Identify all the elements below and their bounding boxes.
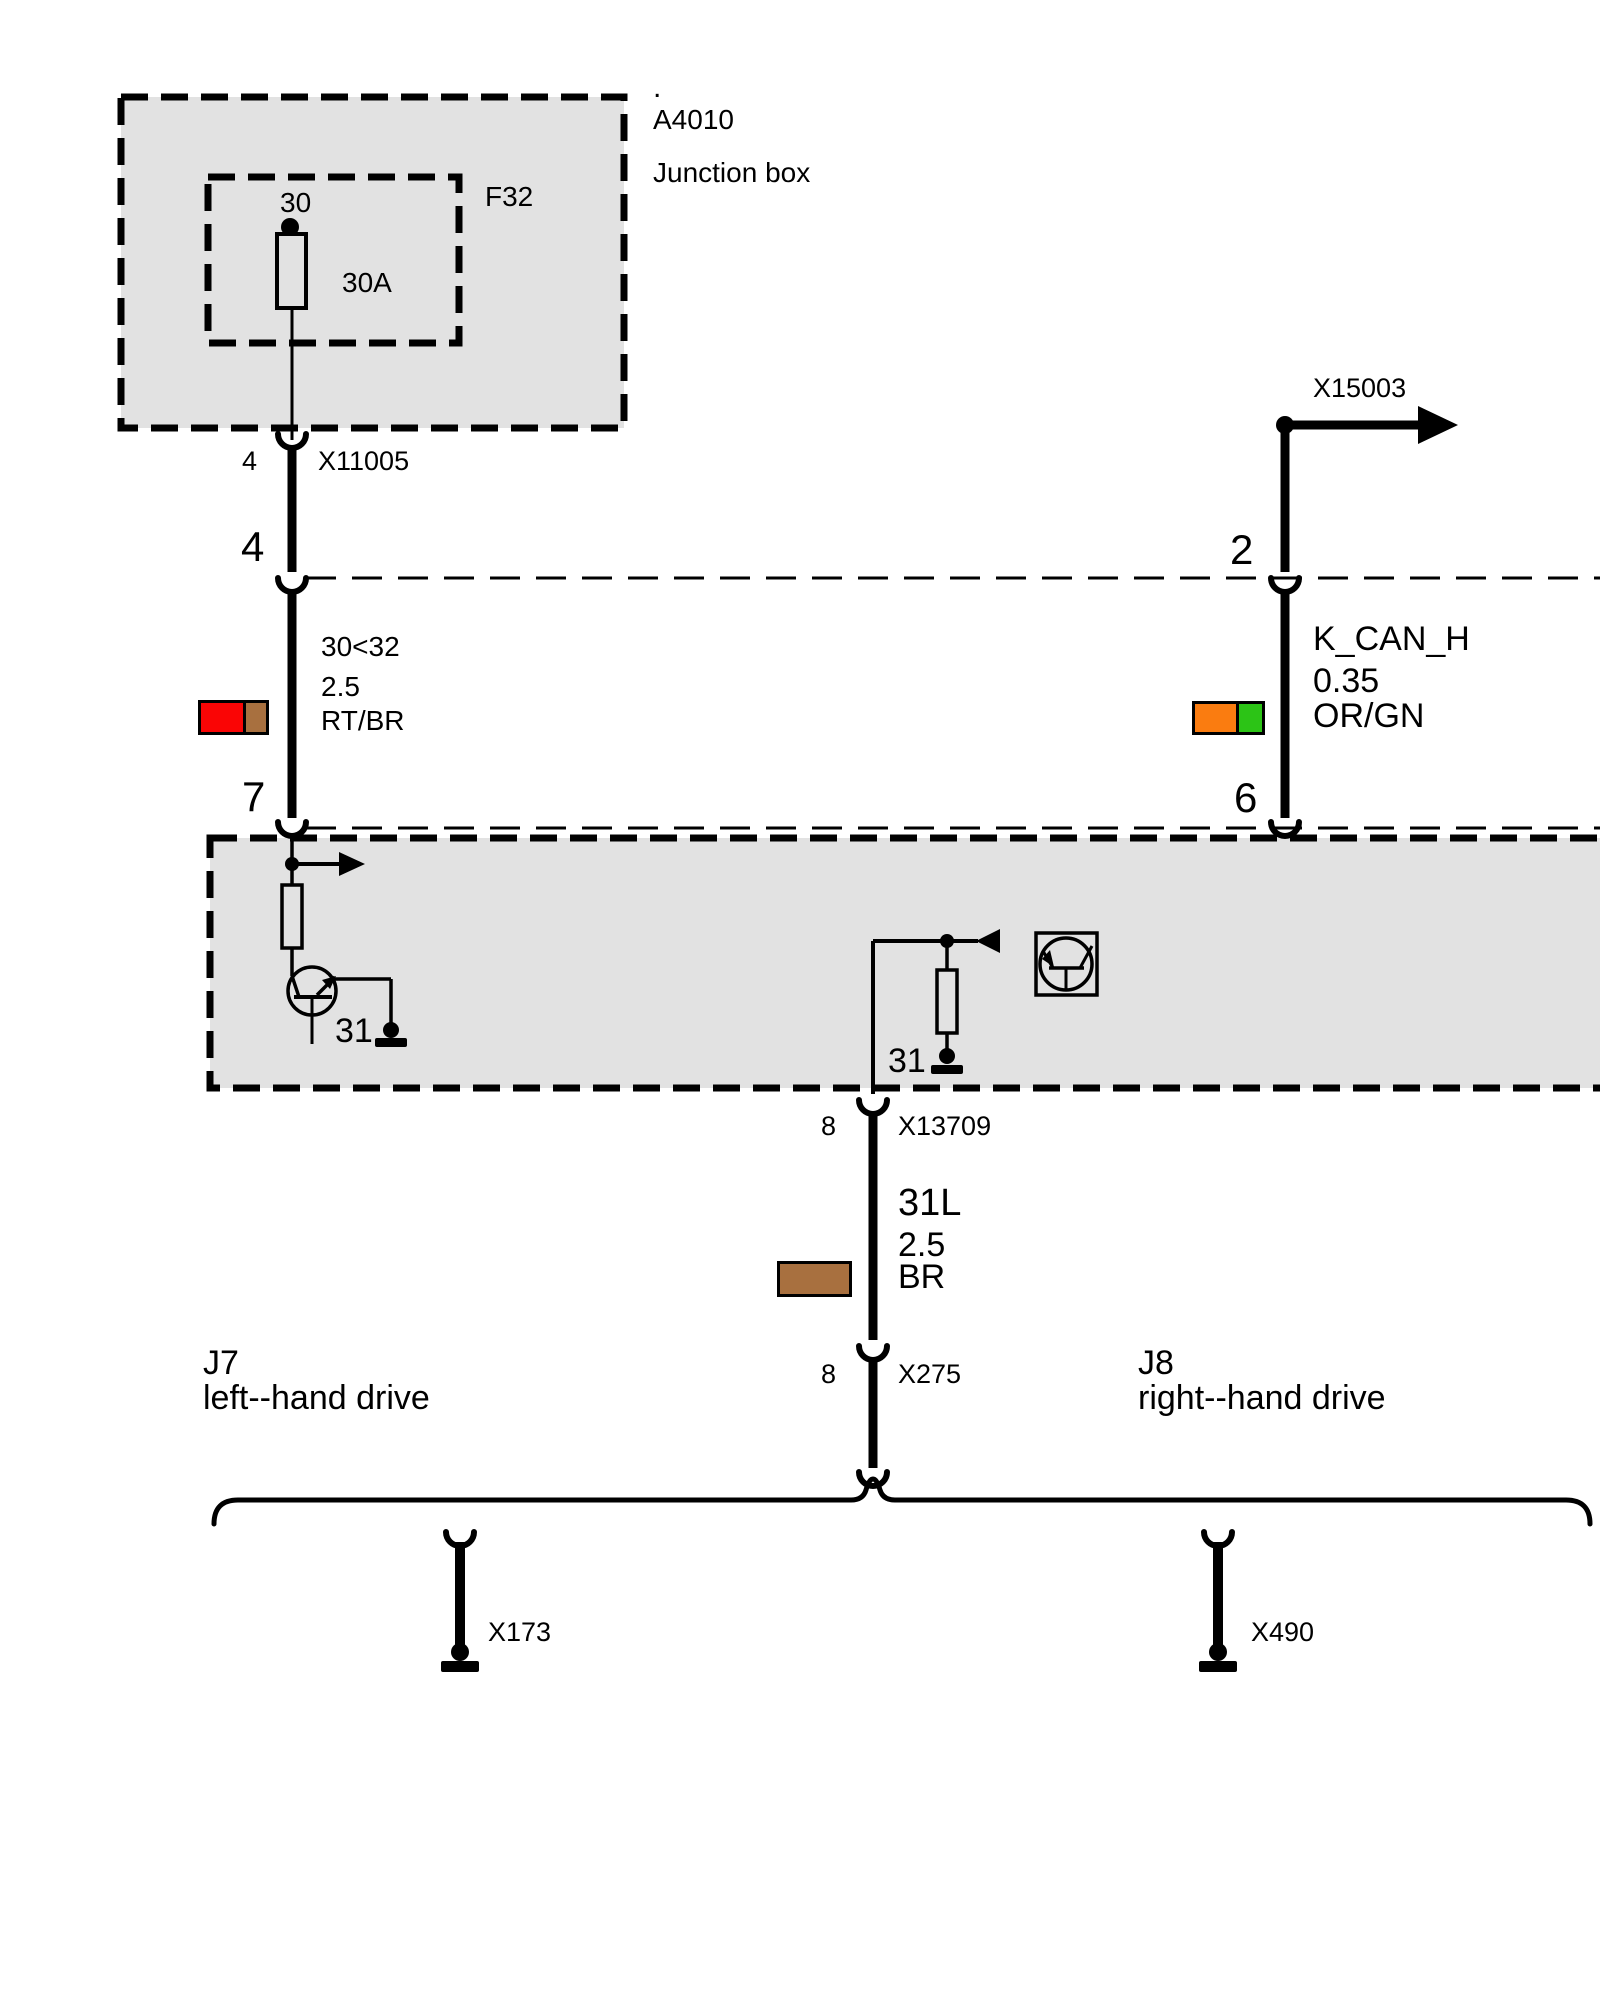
swatch-brown-segment [243,703,266,732]
connector-socket-icon-x13709 [859,1100,887,1114]
wire-left-color-code: RT/BR [321,706,405,735]
resistor-icon [282,885,302,948]
resistor-icon [937,970,957,1033]
wire-right-color-code: OR/GN [1313,699,1424,735]
x173-label: X173 [488,1618,551,1646]
wire-color-swatch-br [777,1261,852,1297]
connector-socket-icon-x275 [859,1346,887,1360]
x490-label: X490 [1251,1618,1314,1646]
x13709-pin: 8 [821,1112,836,1140]
variant-left-label: left--hand drive [203,1381,430,1417]
junction-box-id: A4010 [653,105,734,134]
wire-left-circuit: 30<32 [321,632,400,661]
fuse-terminal: 30 [280,188,311,217]
wire-color-swatch-or-gn [1192,701,1265,735]
swatch-red-segment [201,703,243,732]
connector-socket-icon-x490 [1204,1532,1232,1546]
junction-box-dot: . [653,72,661,104]
x15003-label: X15003 [1313,374,1406,402]
variant-selection-brace [214,1479,1590,1524]
swatch-brown-segment [780,1264,849,1294]
wire-bottom-circuit: 31L [898,1184,961,1224]
wire-color-swatch-rt-br [198,700,269,735]
connector-socket-icon-x173 [446,1532,474,1546]
swatch-green-segment [1236,704,1262,732]
variant-left-code: J7 [203,1346,239,1382]
wire-bottom-color-code: BR [898,1260,945,1296]
ground-x173-icon [441,1643,479,1672]
wiring-diagram-page: . A4010 Junction box F32 30 30A 4 X11005… [0,0,1600,2000]
pin-number-6: 6 [1234,776,1257,820]
connector-socket-icon-pin2 [1271,578,1299,592]
diagram-graphics [0,0,1600,2000]
ground-31-left-label: 31 [335,1014,373,1050]
wire-right-size: 0.35 [1313,664,1379,700]
fuse-rating: 30A [342,268,392,297]
x275-label: X275 [898,1360,961,1388]
ground-31-right-label: 31 [888,1044,926,1080]
x275-pin: 8 [821,1360,836,1388]
junction-box-name: Junction box [653,158,810,187]
connector-socket-icon-pin7 [278,822,306,836]
x11005-label: X11005 [318,447,409,475]
variant-right-label: right--hand drive [1138,1381,1386,1417]
x11005-pin: 4 [242,447,257,475]
pin-number-4: 4 [241,525,264,569]
ground-x490-icon [1199,1643,1237,1672]
wire-right-circuit: K_CAN_H [1313,622,1470,658]
fuse-id: F32 [485,182,533,211]
connector-socket-icon-pin4 [278,578,306,592]
pin-number-2: 2 [1230,528,1253,572]
pin-number-7: 7 [242,775,265,819]
x13709-label: X13709 [898,1112,991,1140]
swatch-orange-segment [1195,704,1236,732]
junction-box-outline [121,97,624,428]
wire-left-size: 2.5 [321,672,360,701]
variant-right-code: J8 [1138,1346,1174,1382]
x15003-arrow-icon [1418,406,1458,444]
